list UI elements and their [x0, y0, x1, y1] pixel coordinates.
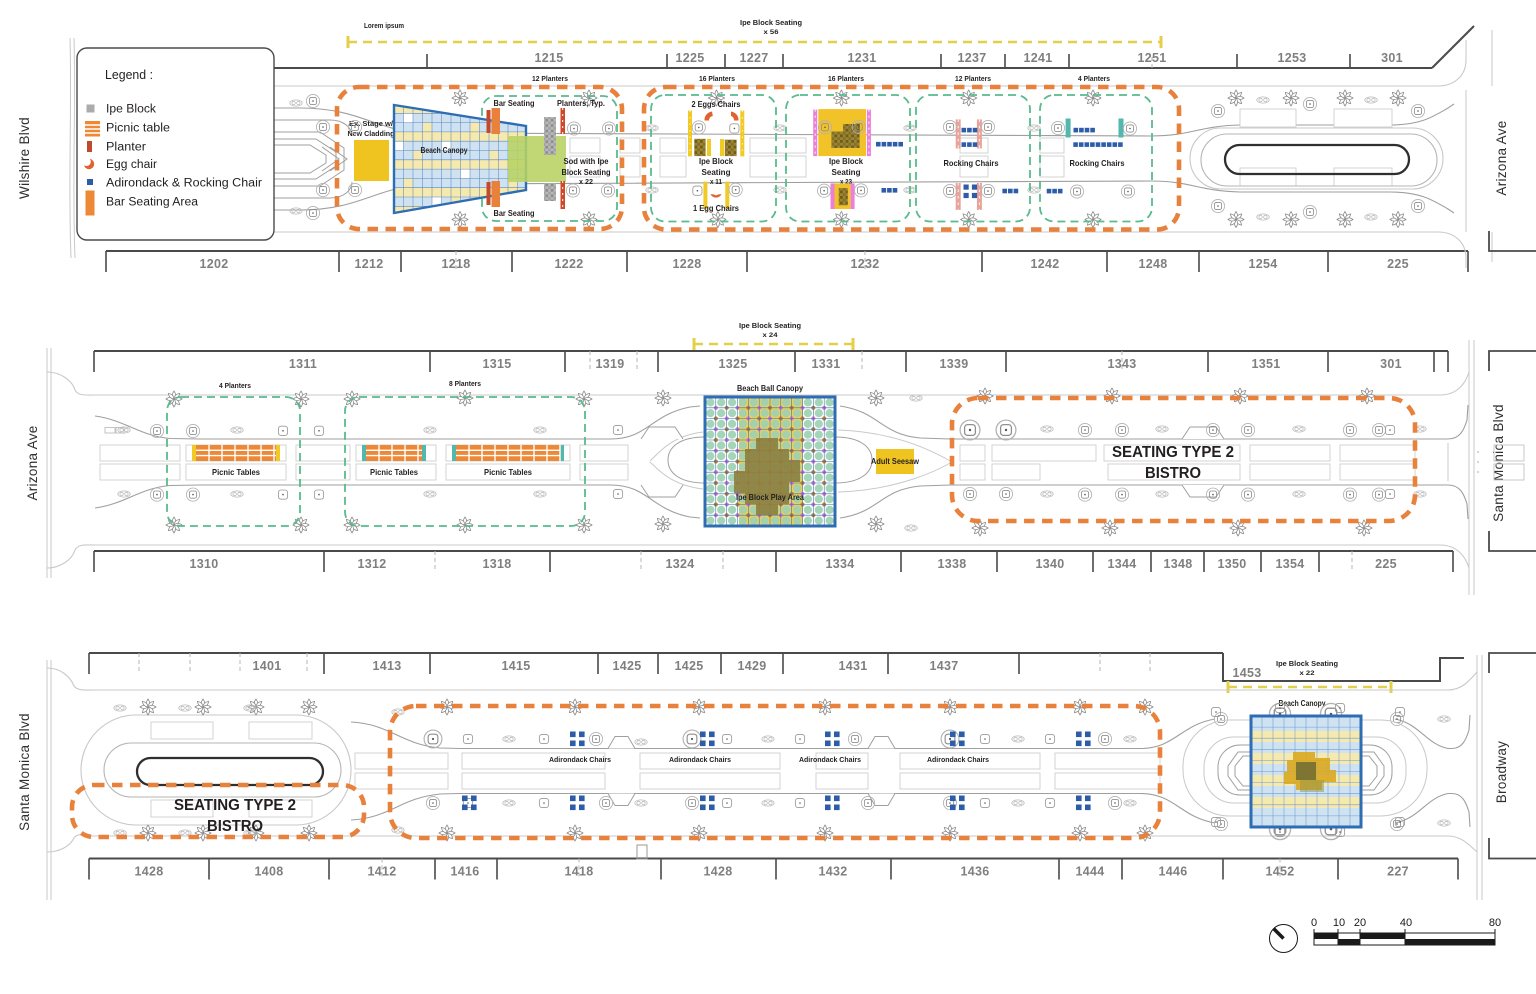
svg-text:1348: 1348 [1163, 557, 1192, 571]
svg-text:8 Planters: 8 Planters [449, 381, 481, 388]
svg-text:1428: 1428 [703, 865, 732, 879]
svg-text:1354: 1354 [1275, 557, 1304, 571]
svg-text:1248: 1248 [1138, 257, 1167, 271]
svg-text:Ipe Block: Ipe Block [106, 104, 156, 116]
svg-text:1429: 1429 [737, 659, 766, 673]
svg-text:Adirondack Chairs: Adirondack Chairs [549, 755, 611, 764]
svg-text:Seating: Seating [702, 168, 731, 177]
svg-text:BISTRO: BISTRO [207, 818, 263, 835]
svg-text:Santa Monica Blvd: Santa Monica Blvd [17, 713, 32, 831]
svg-text:4 Planters: 4 Planters [1078, 76, 1110, 83]
svg-text:x 22: x 22 [579, 179, 593, 186]
svg-text:x 24: x 24 [763, 332, 778, 339]
svg-text:1225: 1225 [675, 51, 704, 65]
svg-text:1340: 1340 [1035, 557, 1064, 571]
svg-text:1310: 1310 [189, 557, 218, 571]
svg-text:Ipe Block: Ipe Block [829, 157, 864, 166]
svg-text:Ipe Block Seating: Ipe Block Seating [739, 321, 801, 330]
svg-text:1453: 1453 [1232, 666, 1261, 680]
svg-text:1343: 1343 [1107, 357, 1136, 371]
svg-text:1241: 1241 [1023, 51, 1052, 65]
svg-text:Picnic Tables: Picnic Tables [370, 467, 418, 477]
svg-text:1432: 1432 [818, 865, 847, 879]
svg-text:Santa Monica Blvd: Santa Monica Blvd [1491, 404, 1506, 522]
svg-text:1312: 1312 [357, 557, 386, 571]
svg-text:1444: 1444 [1075, 865, 1104, 879]
svg-text:1401: 1401 [252, 659, 281, 673]
svg-text:Lorem ipsum: Lorem ipsum [364, 23, 404, 30]
svg-text:1412: 1412 [367, 865, 396, 879]
svg-text:1351: 1351 [1251, 357, 1280, 371]
svg-text:1215: 1215 [534, 51, 563, 65]
svg-text:1339: 1339 [939, 357, 968, 371]
svg-text:225: 225 [1387, 257, 1409, 271]
svg-text:Bar Seating Area: Bar Seating Area [106, 197, 199, 209]
svg-text:Ipe Block Seating: Ipe Block Seating [740, 18, 802, 27]
svg-text:Ipe Block: Ipe Block [699, 157, 734, 166]
svg-text:1 Egg Chairs: 1 Egg Chairs [693, 204, 740, 213]
svg-text:1324: 1324 [665, 557, 694, 571]
svg-text:Egg chair: Egg chair [106, 159, 157, 171]
svg-text:301: 301 [1380, 357, 1402, 371]
svg-text:SEATING TYPE 2: SEATING TYPE 2 [1112, 444, 1234, 461]
svg-text:2 Eggs Chairs: 2 Eggs Chairs [692, 100, 741, 109]
svg-text:1218: 1218 [441, 257, 470, 271]
svg-text:Ipe Block Seating: Ipe Block Seating [1276, 659, 1338, 668]
svg-text:Beach Ball Canopy: Beach Ball Canopy [737, 383, 803, 393]
svg-text:1418: 1418 [564, 865, 593, 879]
svg-text:1318: 1318 [482, 557, 511, 571]
svg-text:Picnic table: Picnic table [106, 123, 170, 135]
svg-text:40: 40 [1400, 917, 1412, 929]
svg-text:1408: 1408 [254, 865, 283, 879]
svg-text:x 11: x 11 [710, 179, 722, 186]
svg-text:BISTRO: BISTRO [1145, 465, 1201, 482]
svg-text:Bar Seating: Bar Seating [494, 99, 535, 108]
svg-text:Adult Seesaw: Adult Seesaw [871, 456, 919, 466]
svg-text:Rocking Chairs: Rocking Chairs [1070, 158, 1125, 168]
svg-text:1331: 1331 [811, 357, 840, 371]
svg-text:Wilshire Blvd: Wilshire Blvd [17, 117, 32, 199]
svg-text:Arizona Ave: Arizona Ave [25, 425, 40, 500]
svg-text:x 56: x 56 [764, 29, 779, 36]
svg-text:16 Planters: 16 Planters [699, 76, 735, 83]
svg-text:1437: 1437 [929, 659, 958, 673]
svg-text:1228: 1228 [672, 257, 701, 271]
svg-text:1212: 1212 [354, 257, 383, 271]
svg-text:0: 0 [1311, 917, 1317, 929]
svg-text:1416: 1416 [450, 865, 479, 879]
svg-text:1242: 1242 [1030, 257, 1059, 271]
svg-text:Beach Canopy: Beach Canopy [1279, 699, 1326, 708]
svg-text:Picnic Tables: Picnic Tables [212, 467, 260, 477]
svg-text:1431: 1431 [838, 659, 867, 673]
svg-text:Arizona Ave: Arizona Ave [1494, 120, 1509, 195]
svg-text:1237: 1237 [957, 51, 986, 65]
svg-text:1232: 1232 [850, 257, 879, 271]
svg-text:1452: 1452 [1265, 865, 1294, 879]
svg-text:Bar Seating: Bar Seating [494, 209, 535, 218]
svg-text:227: 227 [1387, 865, 1409, 879]
svg-text:Adirondack Chairs: Adirondack Chairs [669, 755, 731, 764]
svg-text:Adirondack Chairs: Adirondack Chairs [927, 755, 989, 764]
svg-text:1319: 1319 [595, 357, 624, 371]
svg-text:Adirondack & Rocking Chair: Adirondack & Rocking Chair [106, 178, 262, 190]
svg-text:1344: 1344 [1107, 557, 1136, 571]
svg-text:SEATING TYPE 2: SEATING TYPE 2 [174, 797, 296, 814]
svg-text:Rocking Chairs: Rocking Chairs [944, 158, 999, 168]
svg-text:1350: 1350 [1217, 557, 1246, 571]
svg-text:1315: 1315 [482, 357, 511, 371]
svg-text:Block Seating: Block Seating [562, 168, 611, 177]
svg-text:Beach Canopy: Beach Canopy [421, 145, 468, 155]
svg-text:Sod with Ipe: Sod with Ipe [564, 157, 610, 166]
svg-text:12 Planters: 12 Planters [532, 76, 568, 83]
svg-text:Seating: Seating [832, 168, 861, 177]
svg-text:10: 10 [1333, 917, 1345, 929]
svg-text:1446: 1446 [1158, 865, 1187, 879]
svg-text:1231: 1231 [847, 51, 876, 65]
svg-text:16 Planters: 16 Planters [828, 76, 864, 83]
svg-text:1227: 1227 [739, 51, 768, 65]
svg-text:Adirondack Chairs: Adirondack Chairs [799, 755, 861, 764]
svg-text:4 Planters: 4 Planters [219, 383, 251, 390]
svg-text:1334: 1334 [825, 557, 854, 571]
svg-text:Broadway: Broadway [1494, 741, 1509, 803]
svg-text:Planter: Planter [106, 142, 146, 154]
svg-text:1415: 1415 [501, 659, 530, 673]
svg-text:1311: 1311 [289, 357, 317, 371]
svg-text:1251: 1251 [1137, 51, 1166, 65]
svg-text:1425: 1425 [612, 659, 641, 673]
svg-text:1253: 1253 [1277, 51, 1306, 65]
svg-text:1222: 1222 [554, 257, 583, 271]
svg-text:Legend :: Legend : [105, 67, 153, 82]
svg-text:1254: 1254 [1248, 257, 1277, 271]
svg-text:301: 301 [1381, 51, 1403, 65]
svg-text:20: 20 [1354, 917, 1366, 929]
svg-text:1338: 1338 [937, 557, 966, 571]
svg-text:12 Planters: 12 Planters [955, 76, 991, 83]
svg-text:1436: 1436 [960, 865, 989, 879]
svg-text:Planters, Typ.: Planters, Typ. [557, 99, 605, 108]
svg-text:1428: 1428 [134, 865, 163, 879]
svg-text:1413: 1413 [372, 659, 401, 673]
svg-text:Picnic Tables: Picnic Tables [484, 467, 532, 477]
svg-text:225: 225 [1375, 557, 1397, 571]
svg-text:1202: 1202 [199, 257, 228, 271]
svg-text:x 22: x 22 [1300, 670, 1315, 677]
svg-text:80: 80 [1489, 917, 1501, 929]
svg-text:1425: 1425 [674, 659, 703, 673]
svg-text:Ipe Block Play Area: Ipe Block Play Area [736, 492, 804, 502]
svg-text:1325: 1325 [718, 357, 747, 371]
